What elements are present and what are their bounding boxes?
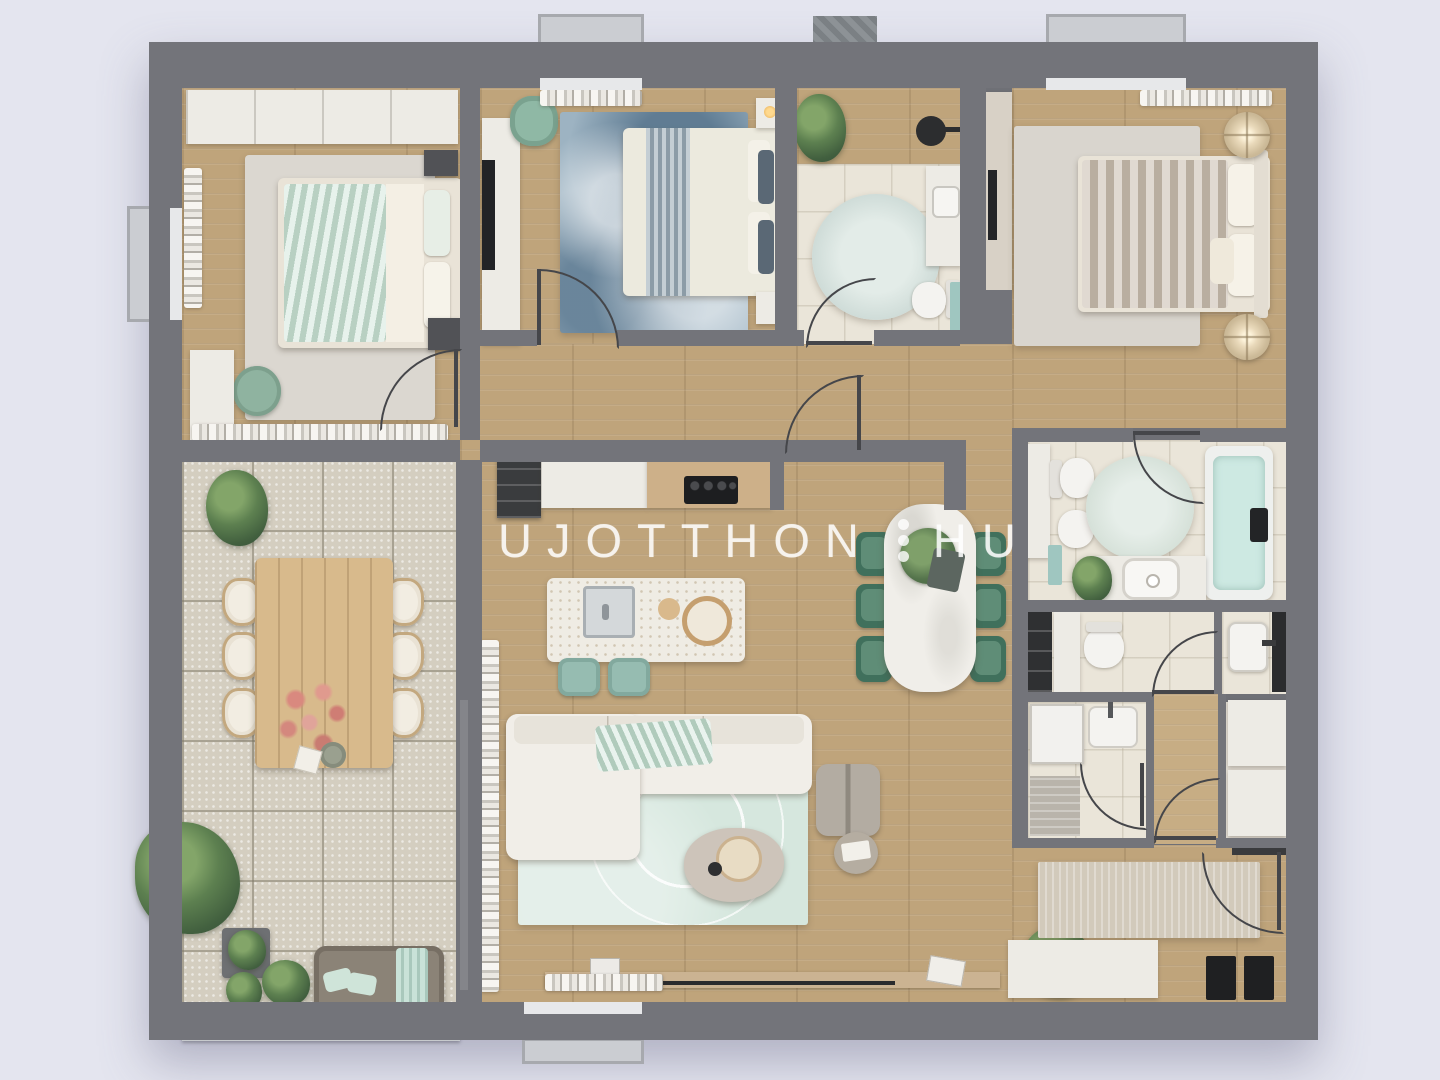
master-headboard — [1254, 150, 1268, 318]
wc-black-shelving — [1028, 610, 1052, 692]
living-tray-cup — [708, 862, 722, 876]
nook-black-strip — [1272, 612, 1286, 692]
bedroom1-curtain-left — [184, 168, 202, 308]
kitchen-tray — [682, 596, 732, 646]
wall-stub-master — [986, 290, 1012, 344]
mainbath-plant — [1072, 556, 1112, 602]
wall-bedroom1-right — [460, 88, 480, 440]
terrace-plant-pot — [228, 930, 266, 970]
entry-sideboard — [1008, 940, 1158, 998]
sill-bedroom2 — [540, 78, 642, 90]
kitchen-cooktop — [684, 476, 738, 504]
wall-shower-hall — [1146, 694, 1154, 844]
wall-kitchen — [480, 440, 966, 462]
watermark-text-right: HU — [933, 513, 1031, 568]
bedroom1-blanket-mint — [284, 184, 386, 342]
master-duvet — [1082, 160, 1228, 308]
wall-mainbath-top-a — [1028, 428, 1133, 442]
kitchen-faucet — [602, 604, 609, 620]
shower-room-basin — [1088, 706, 1138, 748]
floorplan-render: UJOTTHON HU — [0, 0, 1440, 1080]
door-bedroom2-leaf — [537, 269, 541, 345]
terrace-bowl — [320, 742, 346, 768]
watermark-text-left: UJOTTHON — [498, 513, 874, 568]
bedroom1-nightstand — [428, 318, 460, 350]
closet-door-panel — [1228, 770, 1286, 836]
bedroom1-wardrobe — [186, 90, 458, 144]
wall-bedroom2-right — [775, 88, 797, 344]
living-throw-mint — [595, 718, 714, 772]
wall-rightblock-left — [1012, 428, 1028, 848]
bedroom2-tv — [482, 160, 495, 270]
wall-bedroom1-bottom — [149, 440, 460, 462]
terrace-plant-top — [206, 470, 268, 546]
wall-mainbath-bottom — [1028, 600, 1286, 612]
wall-hall-top-b — [617, 330, 804, 346]
mainbath-teal-towel — [1048, 545, 1062, 585]
bedroom2-pillow-dark — [758, 220, 774, 274]
bathroom-top-sink — [932, 186, 960, 218]
shower-room-faucet — [1108, 702, 1113, 718]
wall-hall-top-a — [480, 330, 537, 346]
wall-smallrooms-bottom-b — [1216, 838, 1286, 848]
living-book — [841, 840, 871, 862]
sill-master — [1046, 78, 1186, 90]
master-pillow-small — [1210, 238, 1234, 284]
entry-black-mat — [1244, 956, 1274, 1000]
closet-door-panel — [1228, 700, 1286, 766]
master-bedside-lamp — [1224, 112, 1270, 158]
wall-smallrooms-bottom-a — [1028, 838, 1154, 848]
master-tv — [988, 170, 997, 240]
wall-outer-bottom — [149, 1002, 1318, 1040]
master-bedside-lamp — [1224, 314, 1270, 360]
mainbath-drain — [1146, 574, 1160, 588]
bedroom2-pillow-dark — [758, 150, 774, 204]
door-bathroom-top-leaf — [806, 341, 872, 345]
kitchen-stool-teal — [558, 658, 600, 696]
door-main-bathroom-leaf — [1133, 431, 1200, 435]
living-tray — [716, 836, 762, 882]
door-entry-leaf — [1277, 852, 1281, 930]
terrace-glass-door — [460, 700, 468, 990]
bedroom1-pillow — [424, 190, 450, 256]
shower-glass-panel — [1030, 704, 1084, 764]
bedroom2-curtain-top — [540, 90, 642, 106]
watermark-separator-dots — [898, 519, 909, 562]
window-living-bottom — [522, 1038, 644, 1064]
wall-outer-right — [1286, 42, 1318, 1040]
door-inner-hallway-leaf — [1154, 836, 1216, 840]
wall-outer-left — [149, 42, 182, 1040]
bedroom1-nightstand — [424, 150, 458, 176]
wall-mainbath-top-b — [1200, 428, 1286, 442]
wc-toilet — [1084, 628, 1124, 668]
watermark-separator-dot — [898, 535, 909, 546]
kitchen-island-sink — [583, 586, 635, 638]
nook-faucet — [1262, 640, 1276, 646]
bedroom1-sheet — [386, 184, 424, 342]
wall-hall-top-c — [874, 330, 960, 346]
shower-tray — [1030, 776, 1080, 836]
wall-wc-bottom — [1028, 692, 1152, 702]
bedroom2-bed-runner — [646, 128, 690, 296]
master-curtain-top — [1140, 90, 1272, 106]
wall-kitchen-pillar2 — [770, 440, 784, 510]
wc-white-panel — [1054, 612, 1080, 692]
wc-toilet-tank — [1086, 622, 1122, 632]
living-lounge-chair — [816, 764, 880, 836]
bathroom-top-toilet — [912, 282, 946, 318]
watermark: UJOTTHON HU — [498, 512, 1031, 568]
kitchen-bowl — [658, 598, 680, 620]
sill-living — [524, 1002, 642, 1014]
kitchen-stool-teal — [608, 658, 650, 696]
terrace-plant-pot — [262, 960, 310, 1006]
bathroom-top-plant — [794, 94, 846, 162]
bedroom1-pouf — [233, 366, 281, 416]
door-bedroom1-leaf — [454, 349, 458, 427]
nook-basin — [1228, 622, 1268, 672]
door-wc-leaf — [1152, 690, 1214, 694]
wall-bathroomtop-right — [960, 88, 986, 344]
watermark-separator-dot — [898, 551, 909, 562]
watermark-separator-dot — [898, 519, 909, 530]
door-master-leaf — [857, 375, 861, 450]
living-curtain-terrace-door — [480, 640, 499, 992]
sill-bedroom1 — [170, 208, 182, 320]
entry-black-mat — [1206, 956, 1236, 1000]
living-curtain-bottom-window — [545, 974, 663, 991]
wall-kitchen-pillar — [944, 440, 966, 510]
mainbath-tub-faucet — [1250, 508, 1268, 542]
door-shower-room-leaf — [1140, 763, 1144, 826]
